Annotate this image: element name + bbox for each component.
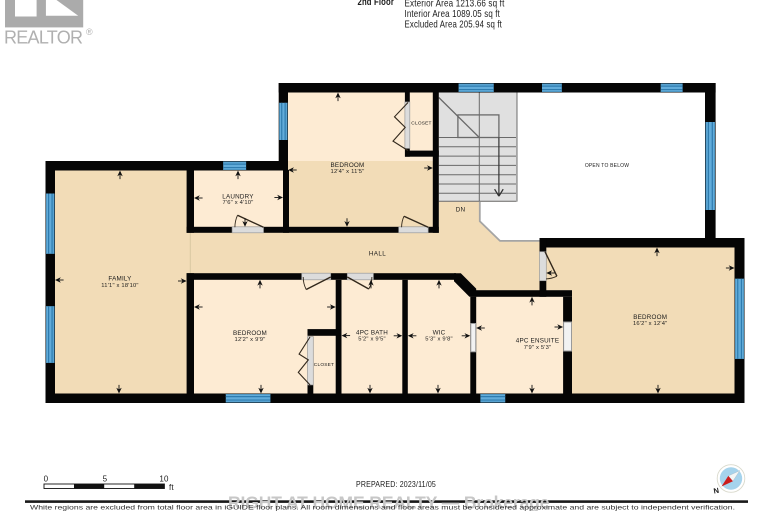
svg-text:Excluded Area 205.94 sq ft: Excluded Area 205.94 sq ft: [405, 19, 503, 31]
svg-text:PREPARED: 2023/11/05: PREPARED: 2023/11/05: [356, 480, 436, 489]
svg-text:FAMILY: FAMILY: [108, 275, 132, 282]
svg-text:OPEN TO BELOW: OPEN TO BELOW: [585, 163, 629, 169]
svg-text:7'9" x 5'3": 7'9" x 5'3": [524, 345, 552, 351]
svg-text:12'2" x 9'9": 12'2" x 9'9": [235, 337, 266, 343]
svg-text:CLOSET: CLOSET: [314, 362, 334, 368]
svg-text:2nd Floor: 2nd Floor: [358, 0, 395, 8]
svg-text:®: ®: [86, 27, 93, 37]
svg-text:16'2" x 12'4": 16'2" x 12'4": [633, 321, 667, 327]
svg-text:5'3" x 9'8": 5'3" x 9'8": [425, 337, 453, 343]
svg-text:0: 0: [44, 474, 49, 483]
svg-text:4PC BATH: 4PC BATH: [356, 330, 388, 337]
svg-text:BEDROOM: BEDROOM: [331, 162, 365, 169]
svg-text:ft: ft: [169, 483, 174, 492]
svg-text:12'4" x 11'5": 12'4" x 11'5": [331, 169, 365, 175]
svg-text:11'1" x 18'10": 11'1" x 18'10": [101, 283, 138, 289]
svg-text:BEDROOM: BEDROOM: [233, 330, 267, 337]
svg-text:CLOSET: CLOSET: [411, 120, 431, 126]
svg-text:DN: DN: [456, 206, 466, 213]
svg-text:HALL: HALL: [369, 250, 386, 257]
svg-text:White regions are excluded fro: White regions are excluded from total fl…: [30, 504, 735, 511]
svg-text:4PC ENSUITE: 4PC ENSUITE: [516, 338, 560, 345]
svg-text:5'2" x 9'5": 5'2" x 9'5": [358, 337, 386, 343]
svg-text:7'6" x 4'10": 7'6" x 4'10": [223, 200, 254, 206]
svg-text:BEDROOM: BEDROOM: [633, 314, 667, 321]
svg-text:REALTOR: REALTOR: [4, 28, 84, 48]
svg-text:10: 10: [159, 474, 169, 483]
svg-text:WIC: WIC: [433, 330, 446, 337]
svg-text:5: 5: [103, 474, 108, 483]
